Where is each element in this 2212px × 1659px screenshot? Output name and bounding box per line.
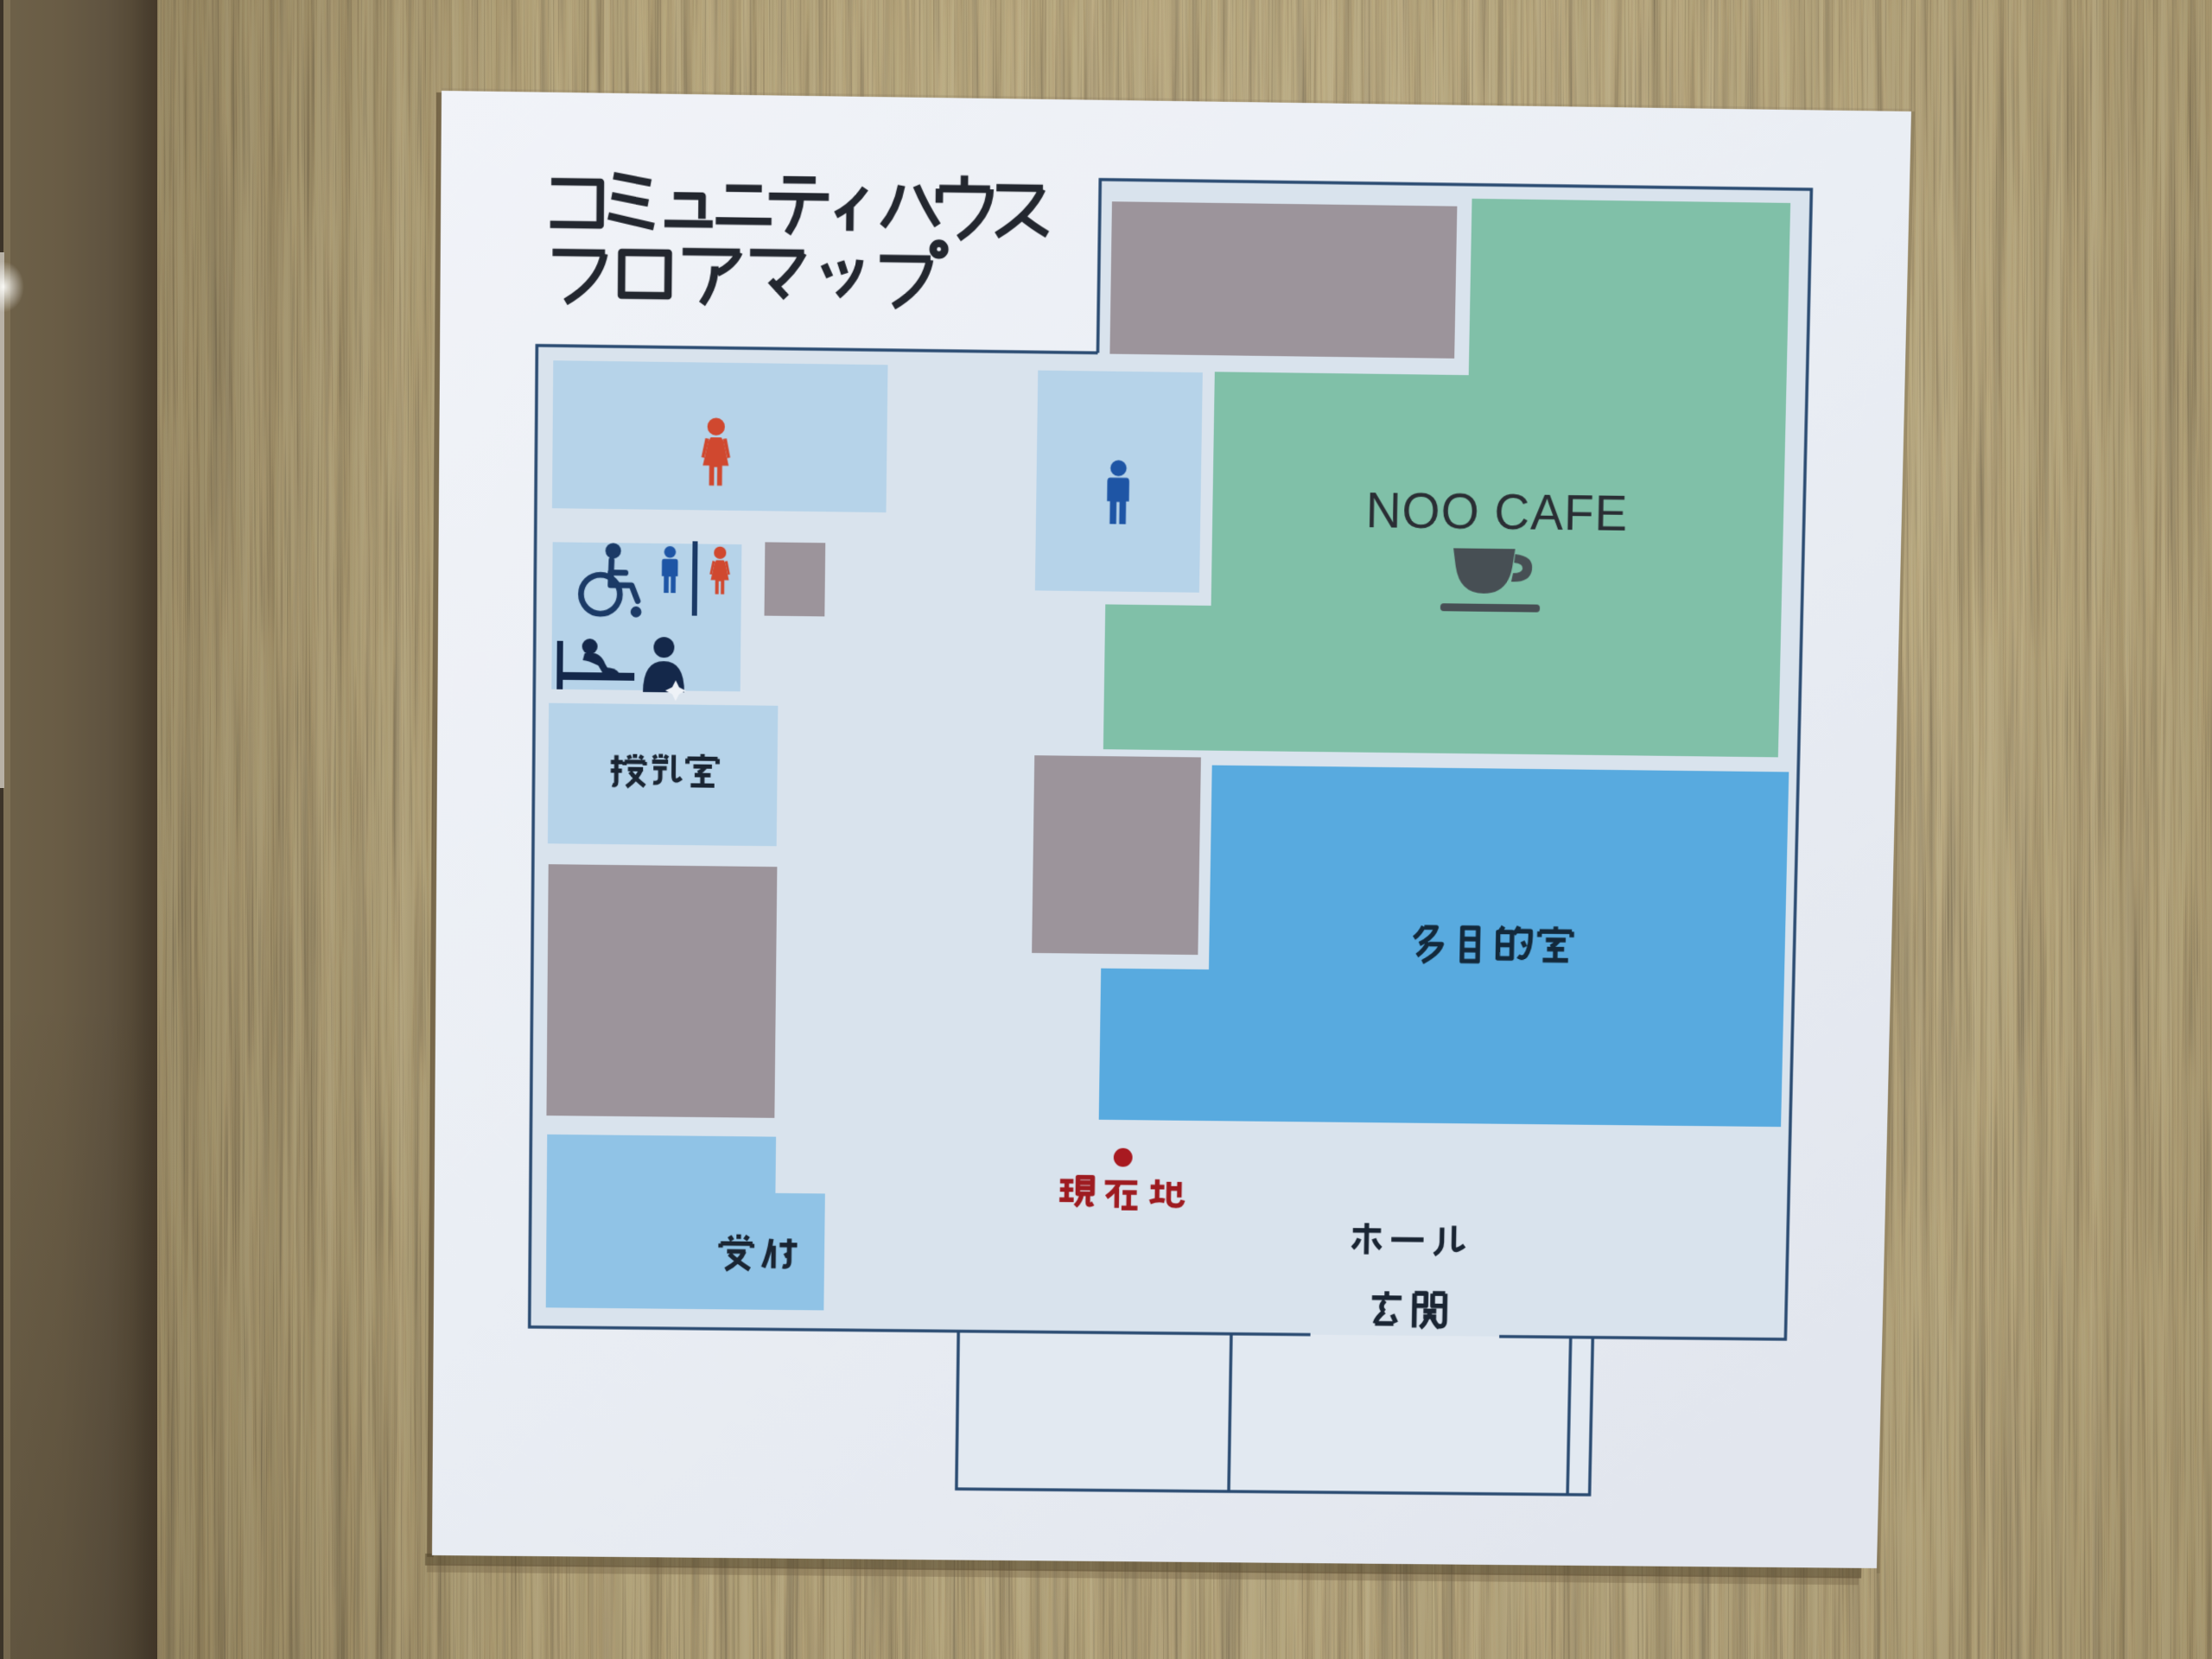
svg-text:NOO CAFE: NOO CAFE: [1365, 484, 1629, 542]
